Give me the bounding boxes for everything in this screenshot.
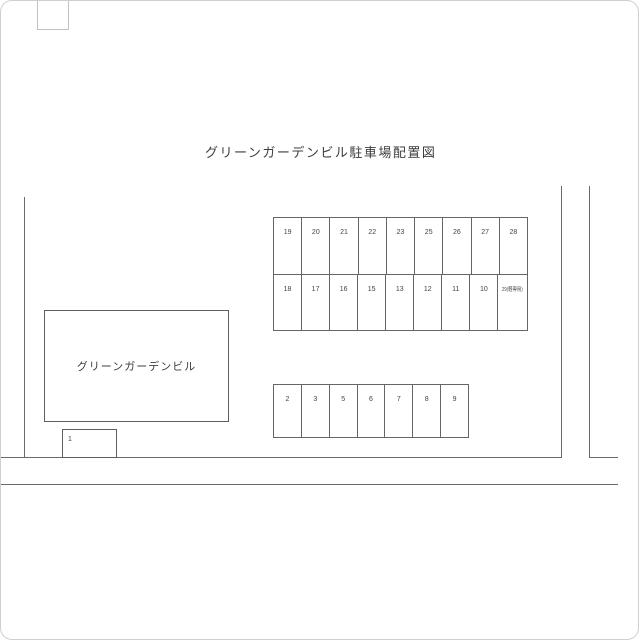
space-10: 10	[469, 275, 497, 331]
road-line-left-vertical	[24, 197, 25, 457]
space-12: 12	[413, 275, 441, 331]
space-17: 17	[301, 275, 329, 331]
space-16: 16	[329, 275, 357, 331]
space-15: 15	[357, 275, 385, 331]
space-28: 28	[499, 218, 527, 274]
space-21: 21	[329, 218, 357, 274]
space-22: 22	[358, 218, 386, 274]
lower-row-cells: 2 3 5 6 7 8 9	[274, 385, 468, 437]
road-line-bottom-lower	[1, 484, 618, 485]
road-line-right-outer-vertical	[589, 186, 590, 457]
space-29-kei-only: 29(軽専用)	[497, 275, 527, 331]
top-left-box	[37, 0, 69, 30]
upper-parking-grid: 19 20 21 22 23 25 26 27 28 18 17 16 15 1…	[273, 217, 528, 331]
space-6: 6	[357, 385, 385, 437]
page-title: グリーンガーデンビル駐車場配置図	[205, 142, 436, 161]
upper-grid-row-a: 19 20 21 22 23 25 26 27 28	[274, 218, 527, 274]
road-line-right-inner-vertical	[561, 186, 562, 457]
space-1-label: 1	[63, 430, 116, 443]
space-11: 11	[441, 275, 469, 331]
space-26: 26	[442, 218, 470, 274]
building-label: グリーンガーデンビル	[77, 358, 196, 374]
space-2: 2	[274, 385, 301, 437]
lower-parking-row: 2 3 5 6 7 8 9	[273, 384, 469, 438]
building-outline: グリーンガーデンビル	[44, 310, 229, 422]
space-13: 13	[385, 275, 413, 331]
space-5: 5	[329, 385, 357, 437]
space-18: 18	[274, 275, 301, 331]
parking-diagram-card: グリーンガーデンビル駐車場配置図 19 20 21 22 23 25 26 27…	[0, 0, 639, 640]
road-line-bottom-upper-right	[589, 457, 618, 458]
space-8: 8	[412, 385, 440, 437]
space-1: 1	[62, 429, 117, 458]
space-27: 27	[471, 218, 499, 274]
space-3: 3	[301, 385, 329, 437]
space-9: 9	[440, 385, 468, 437]
space-25: 25	[414, 218, 442, 274]
space-7: 7	[384, 385, 412, 437]
space-20: 20	[301, 218, 329, 274]
space-23: 23	[386, 218, 414, 274]
upper-grid-row-b: 18 17 16 15 13 12 11 10 29(軽専用)	[274, 274, 527, 331]
space-19: 19	[274, 218, 301, 274]
